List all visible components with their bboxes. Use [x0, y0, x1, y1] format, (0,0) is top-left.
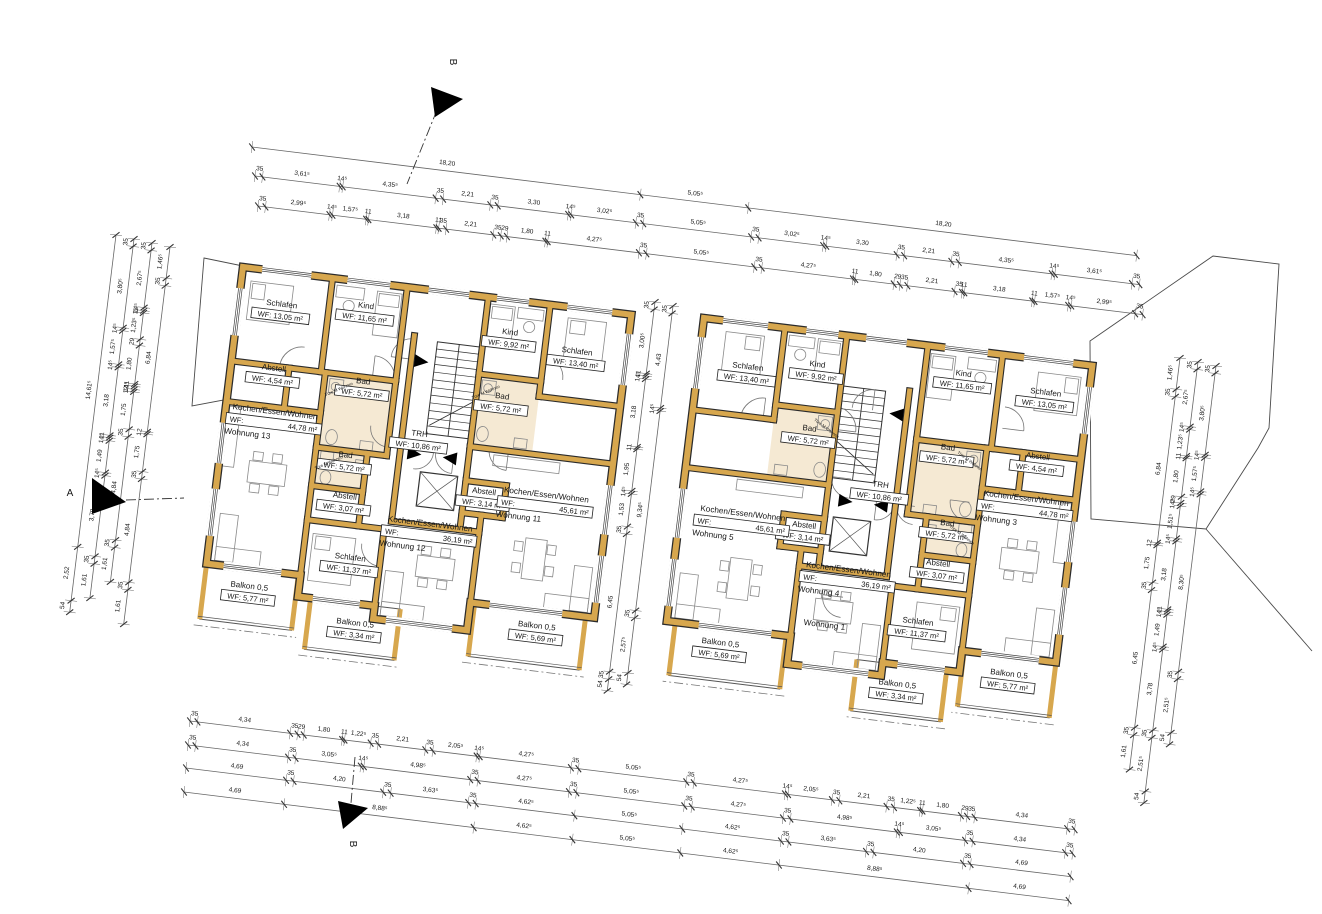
dim-value: 8,30⁵: [1177, 574, 1186, 590]
dim-value: 1,80: [317, 726, 331, 735]
dim-value: 6,84: [1155, 462, 1164, 476]
dim-value: 35: [83, 555, 91, 563]
room-text: Abstell: [261, 362, 286, 374]
dim-value: 54: [59, 601, 67, 609]
dim-value: 35: [755, 256, 763, 264]
dim-value: 29: [298, 723, 306, 731]
dim-value: 14⁵: [620, 486, 628, 497]
dim-value: 14⁵: [820, 234, 831, 242]
dim-value: 2,52: [63, 566, 72, 580]
dim-value: 35: [685, 795, 693, 803]
dim-value: 11: [1175, 452, 1183, 460]
section-arrow-icon: [338, 801, 368, 829]
dim-chain-top-2: 353,61⁵14⁵4,35⁵352,21353,3014⁵3,02⁵355,0…: [252, 165, 1142, 290]
dim-value: 14⁵: [565, 203, 576, 211]
dim-value: 3,18: [397, 212, 411, 221]
dim-value: 35: [1141, 729, 1149, 737]
dim-value: 3,30: [527, 198, 541, 207]
dim-value: 35: [436, 187, 444, 195]
dim-value: 54: [616, 673, 624, 681]
dim-value: 4,27⁵: [516, 774, 532, 783]
dim-value: 4,62⁵: [518, 798, 534, 807]
room-text: Abstell: [472, 486, 497, 498]
dim-value: 1,46⁵: [1166, 364, 1175, 380]
dim-value: 35: [117, 581, 125, 589]
elevator: [829, 517, 871, 556]
dim-value: 14⁵: [1165, 533, 1173, 544]
room-text: Abstell: [926, 557, 951, 569]
dim-value: 2,67⁵: [136, 270, 145, 286]
dim-value: 11: [132, 307, 140, 315]
dim-value: 4,43: [655, 353, 664, 367]
dim-value: 4,27⁵: [518, 750, 534, 759]
dim-value: 35: [122, 237, 130, 245]
dim-value: 35: [782, 830, 790, 838]
dim-value: 1,80: [1172, 470, 1181, 484]
dim-value: 35: [640, 242, 648, 250]
dim-value: 4,69: [230, 762, 244, 771]
room-text: Kind: [502, 327, 519, 338]
dim-value: 3,18: [630, 405, 639, 419]
dim-value: 2,67⁵: [1182, 389, 1191, 405]
dim-value: 11: [626, 443, 634, 451]
room-text: Schlafen: [561, 345, 593, 358]
dim-value: 3,61⁵: [1086, 267, 1102, 276]
dim-value: 4,27⁵: [586, 235, 602, 244]
dim-value: 35: [439, 217, 447, 225]
building-haus-links: SchlafenWF: 13,05 m²KindWF: 11,65 m²Kind…: [192, 265, 634, 691]
dim-value: 2,05⁵: [448, 742, 464, 751]
room-text: WF:: [803, 572, 818, 583]
room-label-kochen-45: Kochen/Essen/WohnenWF:45,61 m²Wohnung 11: [495, 485, 594, 530]
dim-value: 35: [384, 781, 392, 789]
dim-value: 11: [960, 281, 968, 289]
room-label-schlafen-a: SchlafenWF: 13,05 m²: [1015, 384, 1075, 412]
section-letter: B: [347, 841, 358, 848]
room-label-kochen-45: Kochen/Essen/WohnenWF:45,61 m²Wohnung 5: [692, 503, 791, 548]
dim-value: 35: [1141, 581, 1149, 589]
dim-value: 4,27⁵: [800, 262, 816, 271]
room-text: WF:: [229, 415, 244, 426]
dim-chain-bottom-3: 4,69354,20353,63⁵354,62⁵5,05⁵4,62⁵353,63…: [183, 762, 1073, 883]
dim-value: 35: [636, 212, 644, 220]
floorplan-svg: 18,205,05⁵18,20353,61⁵14⁵4,35⁵352,21353,…: [0, 0, 1322, 914]
room-label-kind-b: KindWF: 9,92 m²: [789, 357, 845, 385]
dim-value: 5,05⁵: [621, 810, 637, 819]
dim-value: 35: [259, 195, 267, 203]
dim-value: 1,57⁵: [1191, 465, 1200, 481]
dim-value: 35: [901, 274, 909, 282]
dim-value: 14⁵: [1178, 422, 1186, 433]
neighbor-outline-line: [1206, 529, 1312, 651]
dim-value: 4,69: [1013, 883, 1027, 892]
dim-value: 1,49: [96, 449, 105, 463]
dim-value: 35: [1133, 273, 1141, 281]
dim-value: 14⁵: [474, 745, 485, 753]
dim-value: 3,05⁵: [925, 825, 941, 834]
dim-value: 14⁵: [1193, 450, 1201, 461]
dim-value: 1,49: [1153, 623, 1162, 637]
room-text: Schlafen: [266, 298, 298, 311]
dim-value: 5,05⁵: [693, 248, 709, 257]
dim-value: 35: [661, 304, 669, 312]
dim-value: 1,61: [1120, 744, 1129, 758]
dim-value: 35: [784, 807, 792, 815]
dim-value: 35: [189, 734, 197, 742]
dim-value: 35: [572, 757, 580, 765]
dim-value: 4,20: [912, 846, 926, 855]
dim-value: 1,61: [101, 557, 110, 571]
dim-value: 35: [131, 470, 139, 478]
dim-value: 35: [833, 789, 841, 797]
dim-value: 2,21: [857, 792, 871, 801]
dim-value: 1,75: [1143, 556, 1152, 570]
dim-value: 3,78: [1146, 682, 1155, 696]
section-letter: A: [67, 488, 74, 499]
dim-value: 8,88⁵: [372, 804, 388, 813]
extra-apartment-label: Wohnung 1: [803, 618, 846, 632]
dim-value: 35: [1123, 726, 1131, 734]
room-text: Abstell: [332, 490, 357, 502]
dim-value: 1,23⁵: [130, 317, 139, 333]
dim-value: 11: [918, 799, 926, 807]
dim-value: 1,80: [869, 270, 883, 279]
dim-value: 2,57⁵: [619, 636, 628, 652]
dim-value: 9,34⁵: [636, 502, 645, 518]
dim-value: 35: [968, 806, 976, 814]
dim-value: 35: [140, 241, 148, 249]
dim-value: 1,80: [125, 357, 134, 371]
dim-value: 1,80: [936, 802, 950, 811]
dim-value: 2,99⁵: [290, 199, 306, 208]
dim-value: 3,18: [102, 393, 111, 407]
section-letter: B: [447, 59, 458, 66]
dim-value: 35: [426, 739, 434, 747]
dim-value: 35: [1136, 303, 1144, 311]
dim-value: 1,46⁵: [156, 253, 165, 269]
dim-value: 29: [128, 337, 136, 345]
dim-value: 4,27⁵: [732, 777, 748, 786]
dim-value: 1,22⁵: [350, 730, 366, 739]
dim-value: 4,34: [1015, 811, 1029, 820]
dim-value: 54: [1133, 792, 1141, 800]
dim-value: 14⁵: [107, 359, 115, 370]
dim-value: 35: [616, 525, 624, 533]
room-text: Bad: [356, 376, 371, 387]
dim-chain-top-1: 18,205,05⁵18,20: [249, 141, 1139, 262]
dim-value: 1,22⁵: [900, 797, 916, 806]
dim-value: 6,45: [606, 595, 615, 609]
room-text: WF:: [384, 527, 399, 538]
dim-value: 35: [287, 769, 295, 777]
room-text: Bad: [802, 423, 817, 434]
dim-value: 1,51⁵: [1166, 513, 1175, 529]
dim-value: 1,57⁵: [1044, 292, 1060, 301]
dim-value: 2,05⁵: [803, 785, 819, 794]
dim-value: 8,88⁵: [867, 865, 883, 874]
dim-value: 14,61⁵: [85, 380, 94, 400]
dim-value: 4,84: [123, 523, 132, 537]
dim-value: 3,05⁵: [321, 750, 337, 759]
dim-value: 54: [1159, 733, 1167, 741]
dim-value: 35: [256, 165, 264, 173]
dim-value: 35: [624, 609, 632, 617]
room-text: Schlafen: [334, 551, 366, 564]
dim-value: 35: [371, 732, 379, 740]
room-text: Kind: [358, 300, 375, 311]
dim-chain-right-1: 1,46⁵356,84121,75356,45351,61: [1120, 355, 1186, 772]
dim-value: 4,34: [1013, 835, 1027, 844]
room-text: WF:: [697, 516, 712, 527]
dim-value: 3,61⁵: [294, 170, 310, 179]
door-arrow-icon: [889, 407, 904, 422]
dim-value: 35: [117, 428, 125, 436]
dim-value: 14⁵: [1151, 642, 1159, 653]
dim-value: 14⁵: [98, 433, 106, 444]
room-label-kochen-36: Kochen/Essen/WohnenWF:36,19 m²Wohnung 4: [797, 559, 896, 604]
dim-value: 12: [136, 428, 144, 436]
dim-value: 1,80: [520, 227, 534, 236]
room-text: Wohnung 5: [692, 528, 735, 542]
dim-value: 11: [1031, 290, 1039, 298]
dim-value: 35: [887, 796, 895, 804]
dim-value: 35: [104, 538, 112, 546]
dim-value: 4,34: [238, 716, 252, 725]
dim-value: 35: [1186, 360, 1194, 368]
room-text: Wohnung 11: [495, 509, 542, 524]
dim-value: 4,62⁵: [516, 822, 532, 831]
dim-value: 3,80⁵: [1198, 405, 1207, 421]
dim-value: 14⁵: [894, 821, 905, 829]
dim-value: 35: [1204, 364, 1212, 372]
elevator: [416, 472, 458, 511]
dim-value: 18,20: [935, 220, 952, 229]
dim-value: 35: [964, 853, 972, 861]
dim-value: 3,00⁵: [638, 332, 647, 348]
dim-value: 54: [597, 680, 605, 688]
room-text: Bad: [940, 442, 955, 453]
dim-value: 35: [469, 792, 477, 800]
room-text: WF:: [981, 501, 996, 512]
dim-value: 3,63⁵: [820, 835, 836, 844]
dim-value: 14⁵: [1049, 262, 1060, 270]
dim-value: 5,05⁵: [623, 787, 639, 796]
room-text: Schlafen: [902, 615, 934, 628]
dim-value: 5,05⁵: [690, 218, 706, 227]
room-text: Abstell: [792, 519, 817, 531]
dim-value: 6,84: [145, 351, 154, 365]
dim-value: 4,98⁵: [836, 814, 852, 823]
dim-value: 4,69: [228, 786, 242, 795]
dim-value: 2,21: [461, 190, 475, 199]
room-text: Wohnung 3: [975, 513, 1018, 527]
dim-value: 11: [340, 728, 348, 736]
dim-value: 35: [1068, 818, 1076, 826]
dim-value: 35: [643, 300, 651, 308]
dim-value: 14⁵: [337, 175, 348, 183]
dim-value: 35: [752, 226, 760, 234]
dim-value: 12: [123, 385, 131, 393]
dim-value: 35: [491, 194, 499, 202]
dim-value: 14⁵: [111, 323, 119, 334]
dim-value: 3,30: [856, 239, 870, 248]
architectural-drawing: 18,205,05⁵18,20353,61⁵14⁵4,35⁵352,21353,…: [0, 0, 1322, 914]
dim-value: 4,69: [1015, 859, 1029, 868]
dim-value: 3,02⁵: [596, 207, 612, 216]
dim-value: 1,75: [120, 403, 129, 417]
dim-value: 35: [154, 277, 162, 285]
dim-value: 4,62⁵: [724, 823, 740, 832]
dim-value: 35: [897, 244, 905, 252]
dim-value: 35: [598, 670, 606, 678]
room-text: Schlafen: [732, 360, 764, 373]
dim-value: 14⁵: [1189, 486, 1197, 497]
dim-value: 6,45: [1131, 651, 1140, 665]
dim-value: 14⁵: [1156, 607, 1164, 618]
dim-value: 1,53: [618, 502, 627, 516]
room-label-kind-a: KindWF: 11,65 m²: [933, 366, 993, 394]
room-text: Bad: [495, 391, 510, 402]
dim-value: 1,95: [623, 462, 632, 476]
dim-value: 5,05⁵: [687, 189, 703, 198]
building-haus-rechts: SchlafenWF: 13,05 m²KindWF: 11,65 m²Kind…: [656, 316, 1098, 742]
dim-value: 5,05⁵: [625, 763, 641, 772]
dim-value: 1,61: [80, 573, 89, 587]
dim-value: 14⁵: [1065, 294, 1076, 302]
dim-value: 4,62⁵: [722, 847, 738, 856]
dim-value: 14⁵: [634, 371, 642, 382]
dim-value: 18,20: [439, 159, 456, 168]
dim-value: 35: [570, 781, 578, 789]
dim-value: 1,23⁵: [1176, 434, 1185, 450]
dim-value: 1,61: [114, 599, 123, 613]
dim-value: 4,20: [333, 775, 347, 784]
dim-value: 29: [501, 225, 509, 233]
dim-value: 35: [1164, 388, 1172, 396]
dim-value: 11: [544, 230, 552, 238]
dim-value: 35: [1066, 842, 1074, 850]
dim-value: 3,80⁵: [116, 278, 125, 294]
dim-value: 14⁵: [326, 203, 337, 211]
room-text: Abstell: [1025, 450, 1050, 462]
dim-value: 35: [289, 746, 297, 754]
dim-value: 1,75: [133, 445, 142, 459]
dim-value: 14⁵: [782, 783, 793, 791]
dim-value: 4,27⁵: [730, 801, 746, 810]
dim-value: 2,99⁵: [1096, 298, 1112, 307]
dim-value: 14⁵: [358, 755, 369, 763]
dim-value: 4,35⁵: [998, 256, 1014, 265]
room-label-schlafen-a: SchlafenWF: 13,05 m²: [251, 296, 311, 324]
dim-value: 4,98⁵: [410, 761, 426, 770]
dim-value: 2,51⁵: [1162, 697, 1171, 713]
dim-value: 35: [867, 841, 875, 849]
room-label-schlafen-c: SchlafenWF: 11,37 m²: [887, 613, 947, 641]
door-arc: [1002, 407, 1026, 431]
dim-value: 14⁵: [94, 468, 102, 479]
dim-value: 35: [1167, 670, 1175, 678]
dim-value: 5,05⁵: [619, 834, 635, 843]
dim-value: 2,51⁵: [1137, 755, 1146, 771]
room-text: TRH: [411, 428, 429, 439]
dim-value: 1,57⁵: [109, 338, 118, 354]
dim-value: 3,02⁵: [784, 230, 800, 239]
dim-value: 2,21: [464, 220, 478, 229]
room-text: Kind: [955, 368, 972, 379]
dim-value: 14⁵: [649, 403, 657, 414]
room-label-schlafen-b: SchlafenWF: 13,40 m²: [546, 343, 606, 371]
room-text: Schlafen: [1030, 386, 1062, 399]
dim-value: 12: [1146, 539, 1154, 547]
dim-value: 4,34: [236, 740, 250, 749]
dim-value: 11: [364, 208, 372, 216]
room-text: Wohnung 4: [797, 584, 840, 598]
room-label-schlafen-b: SchlafenWF: 13,40 m²: [717, 359, 777, 387]
dim-value: 3,18: [1160, 567, 1169, 581]
dim-value: 14⁵: [1169, 498, 1177, 509]
room-label-kind-b: KindWF: 9,92 m²: [481, 324, 537, 352]
dim-value: 1,57⁵: [342, 205, 358, 214]
dim-value: 35: [687, 771, 695, 779]
room-text: TRH: [872, 479, 890, 490]
room-text: WF:: [501, 498, 516, 509]
dim-value: 2,21: [925, 277, 939, 286]
room-text: Kind: [809, 359, 826, 370]
dim-value: 35: [966, 830, 974, 838]
dim-value: 4,35⁵: [382, 181, 398, 190]
dim-value: 11: [851, 268, 859, 276]
dim-value: 2,21: [396, 735, 410, 744]
dim-value: 3,18: [992, 285, 1006, 294]
door-arrow-icon: [414, 354, 429, 369]
dim-value: 35: [471, 769, 479, 777]
dim-value: 3,63⁵: [422, 786, 438, 795]
dim-value: 35: [952, 251, 960, 259]
section-arrow-icon: [431, 87, 463, 117]
dim-value: 2,21: [922, 247, 936, 256]
dim-value: 35: [191, 710, 199, 718]
